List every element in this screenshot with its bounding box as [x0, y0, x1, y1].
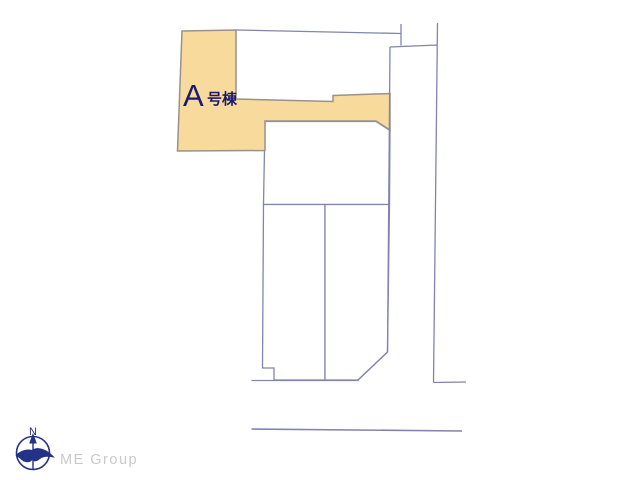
road-line-bottom [252, 429, 463, 431]
parcel-upper-middle [264, 122, 391, 205]
parcel-a-label-prefix: A [183, 78, 204, 113]
road-edge-bottom-right [434, 382, 467, 383]
site-plan: A 号棟 N ME Group [0, 0, 640, 480]
road-strip-top-line [390, 45, 438, 47]
watermark-text: ME Group [60, 452, 138, 468]
parcel-a-label-suffix: 号棟 [207, 90, 238, 108]
north-label: N [29, 426, 37, 438]
boundary-top-sloped-line [236, 30, 401, 34]
parcel-lower-left [263, 205, 326, 381]
road-strip-right-edge [434, 23, 438, 383]
compass: N [16, 426, 55, 470]
parcel-lower-right [325, 205, 390, 381]
site-plan-svg: A 号棟 N ME Group [0, 0, 640, 480]
